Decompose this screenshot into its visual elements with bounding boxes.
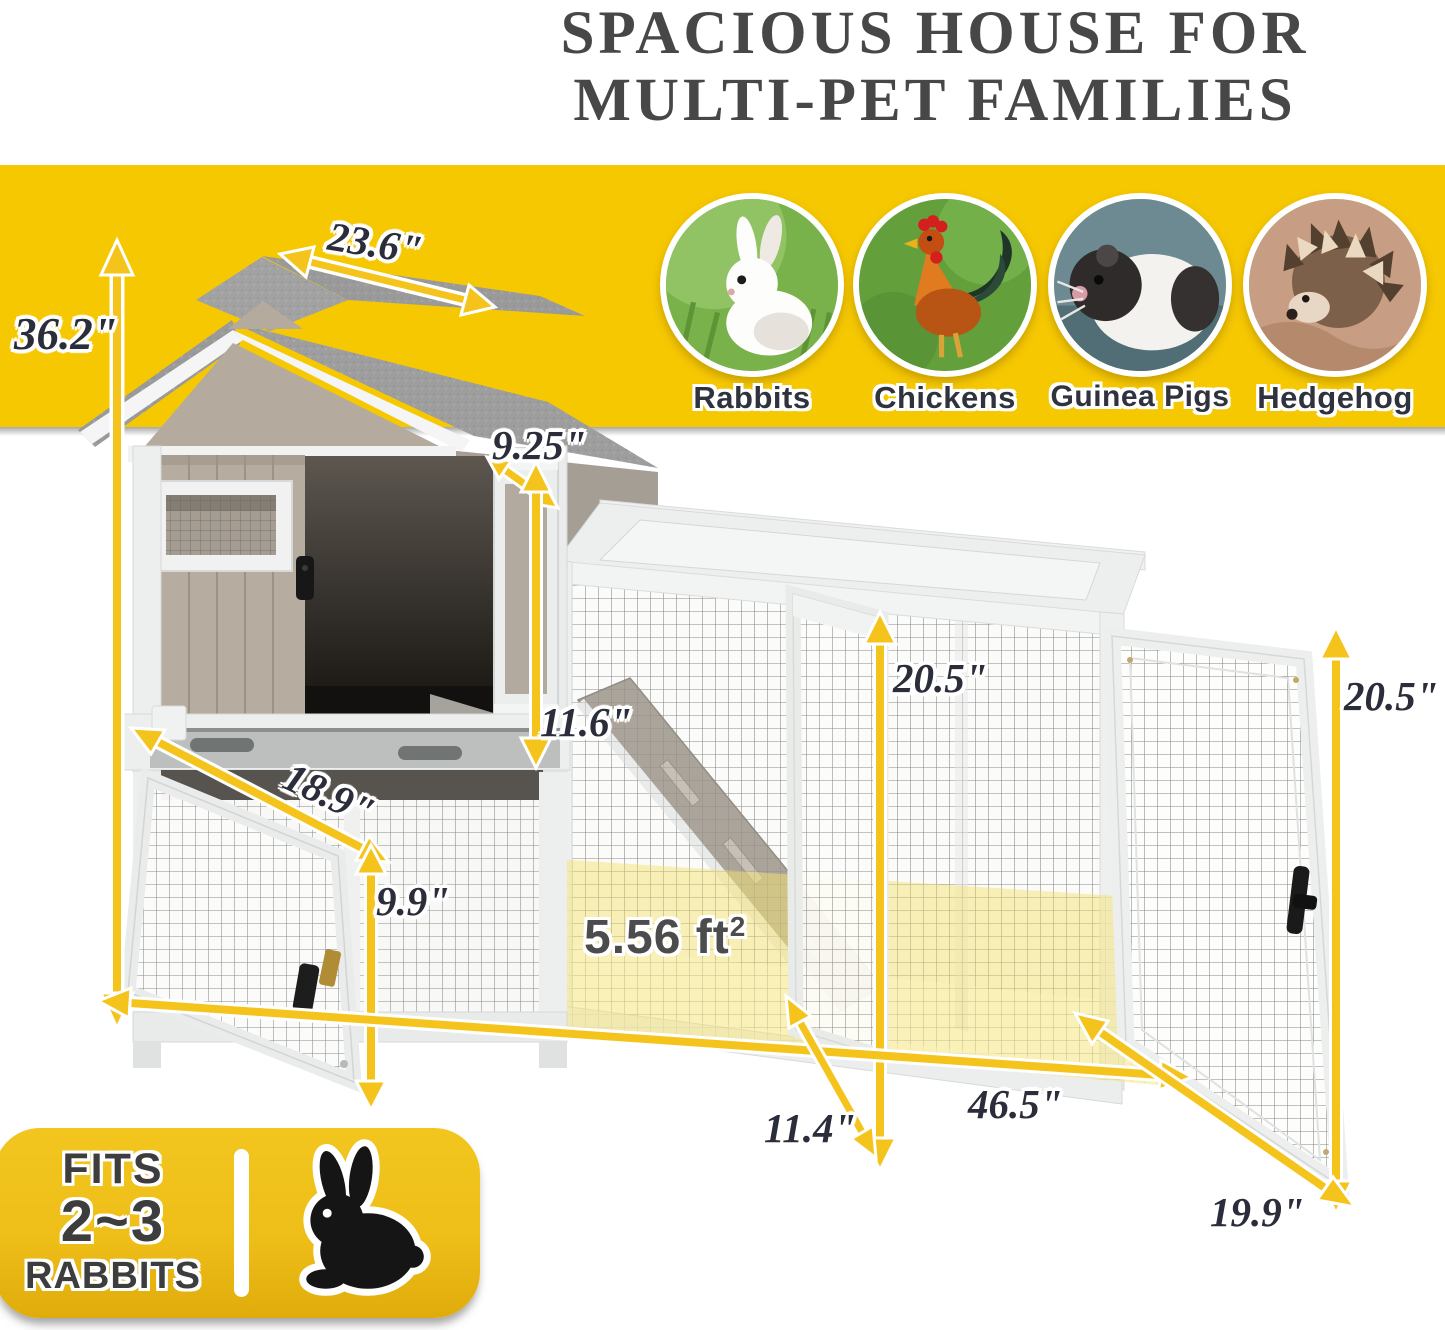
dimension-overall-height: 36.2" xyxy=(14,308,118,360)
house-latch-icon xyxy=(296,556,314,600)
fits-line-2: 2~3 xyxy=(0,1193,232,1251)
dimension-lower-height: 9.9" xyxy=(376,877,450,925)
floor-area-label: 5.56 ft2 xyxy=(584,910,746,965)
fits-divider xyxy=(234,1149,249,1297)
fits-badge: FITS 2~3 RABBITS xyxy=(0,1128,480,1318)
dimension-right-door-height: 20.5" xyxy=(1344,672,1439,720)
dimension-run-inner-height: 20.5" xyxy=(893,654,988,702)
house-doorway xyxy=(305,456,497,718)
run-right-door xyxy=(1112,636,1340,1186)
fits-line-1: FITS xyxy=(0,1145,232,1193)
dimension-house-door-width: 9.25" xyxy=(492,421,587,469)
dimension-run-length: 46.5" xyxy=(968,1080,1063,1128)
infographic: SPACIOUS HOUSE FOR MULTI-PET FAMILIES xyxy=(0,0,1445,1330)
floor-area-value: 5.56 ft xyxy=(584,911,730,964)
house-window xyxy=(150,481,292,571)
run-middle-door xyxy=(793,594,881,1056)
dimension-middle-door-width: 11.4" xyxy=(764,1104,856,1152)
rabbit-silhouette-icon xyxy=(263,1139,439,1307)
floor-area-sup: 2 xyxy=(730,911,747,942)
fits-badge-text: FITS 2~3 RABBITS xyxy=(0,1145,232,1301)
fits-line-3: RABBITS xyxy=(0,1251,232,1301)
dimension-right-door-width: 19.9" xyxy=(1210,1188,1305,1236)
dimension-house-inner-height: 11.6" xyxy=(540,698,632,746)
